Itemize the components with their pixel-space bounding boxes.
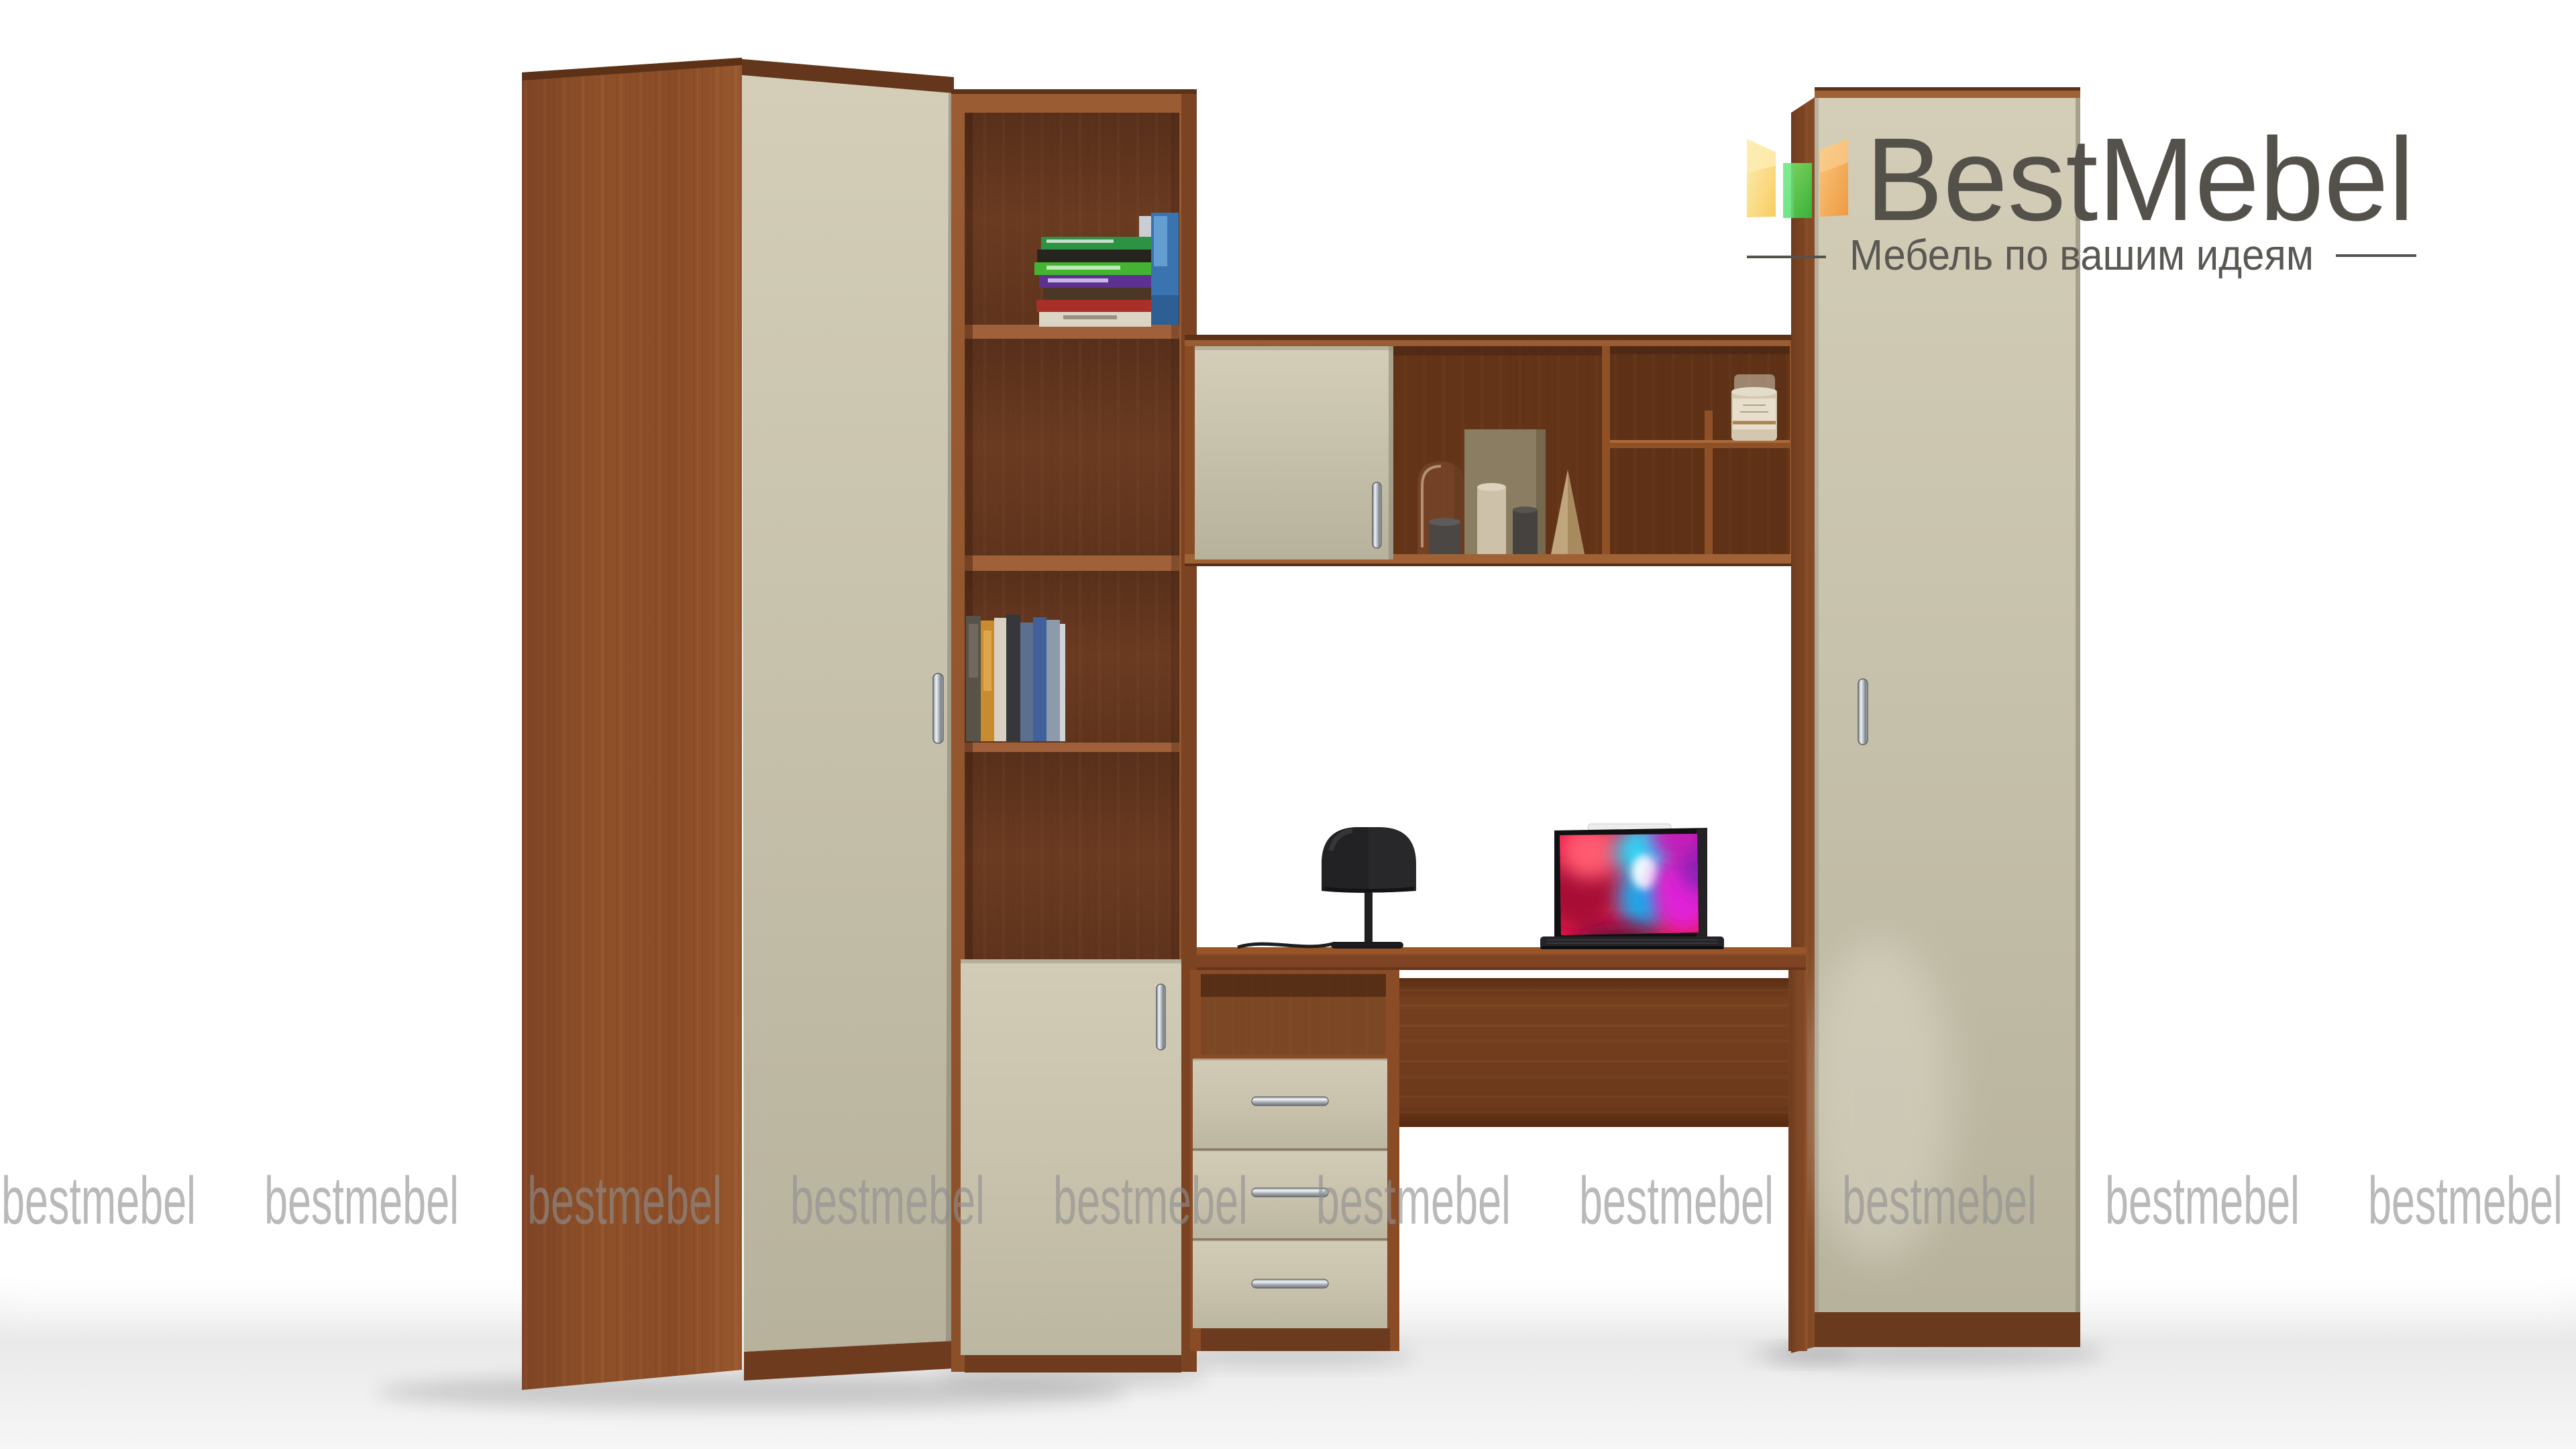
svg-text:BestMebel: BestMebel bbox=[1866, 114, 2414, 246]
svg-text:bestmebel: bestmebel bbox=[1316, 1163, 1511, 1238]
svg-text:bestmebel: bestmebel bbox=[2368, 1163, 2563, 1238]
svg-text:bestmebel: bestmebel bbox=[527, 1163, 722, 1238]
svg-text:bestmebel: bestmebel bbox=[1, 1163, 196, 1238]
svg-text:bestmebel: bestmebel bbox=[1842, 1163, 2037, 1238]
svg-text:Мебель по вашим идеям: Мебель по вашим идеям bbox=[1849, 231, 2314, 279]
svg-text:bestmebel: bestmebel bbox=[1579, 1163, 1774, 1238]
svg-text:bestmebel: bestmebel bbox=[264, 1163, 459, 1238]
svg-text:bestmebel: bestmebel bbox=[1053, 1163, 1248, 1238]
svg-text:bestmebel: bestmebel bbox=[790, 1163, 985, 1238]
svg-text:bestmebel: bestmebel bbox=[2105, 1163, 2300, 1238]
